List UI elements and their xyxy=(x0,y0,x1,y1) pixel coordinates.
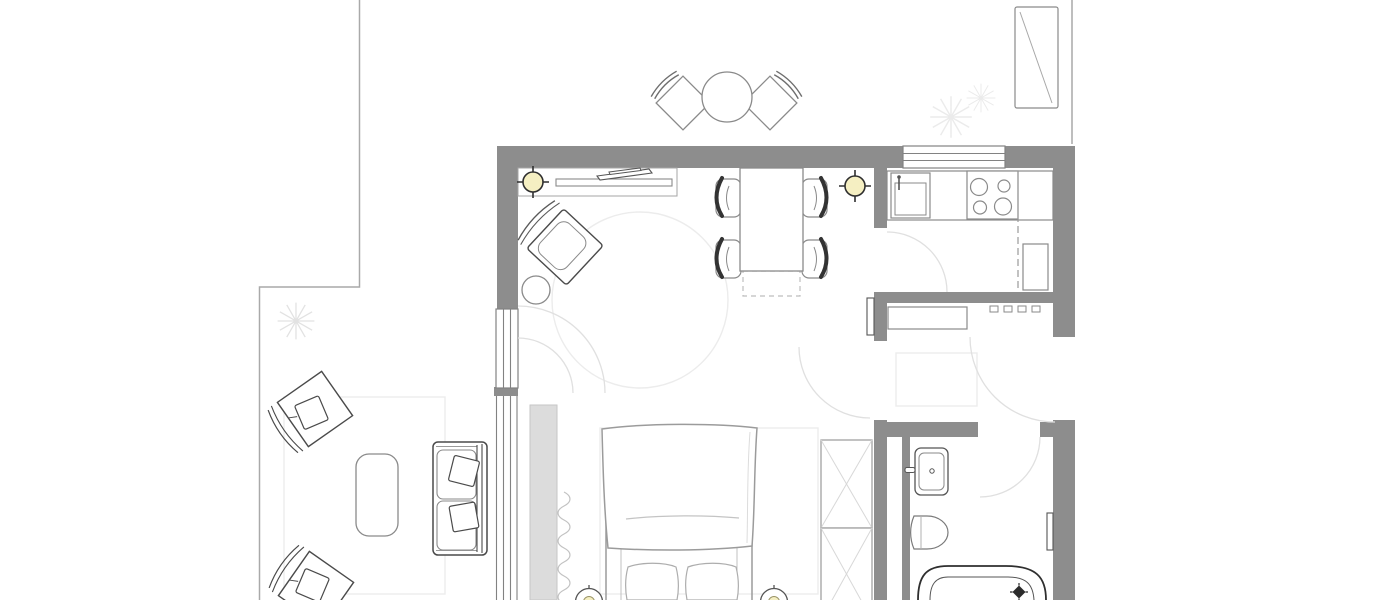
plant-icon xyxy=(930,96,972,138)
wall-bathroom-inner xyxy=(902,437,910,600)
hall-rug xyxy=(896,353,977,406)
double-bed xyxy=(602,424,757,600)
duvet xyxy=(602,424,757,550)
kitchen-door-swing-arc xyxy=(887,232,947,292)
hook-icon xyxy=(1032,306,1040,312)
pillow xyxy=(626,563,679,600)
wall-mid-lower xyxy=(874,420,887,600)
bedside-lamp-left xyxy=(576,585,603,600)
wall-top-right xyxy=(1005,146,1075,168)
hallway-door-leaf xyxy=(867,298,874,335)
kitchen-sink xyxy=(891,173,930,218)
outdoor-sofa xyxy=(433,442,487,555)
glass-door-swing-arc xyxy=(518,306,605,393)
wall-right-lower xyxy=(1053,420,1075,600)
washbasin xyxy=(905,448,948,495)
wall-niche xyxy=(1047,513,1053,550)
pouf xyxy=(522,276,550,304)
hook-icon xyxy=(1004,306,1012,312)
plant-icon xyxy=(967,84,996,113)
top-window xyxy=(903,146,1005,168)
hook-icon xyxy=(1018,306,1026,312)
base-cabinet xyxy=(1023,244,1048,290)
wall-mid-upper xyxy=(874,168,887,228)
wall-right-upper xyxy=(1053,168,1075,337)
faucet-icon xyxy=(905,468,915,473)
glass-sliding-door xyxy=(497,396,518,600)
toilet xyxy=(911,516,948,549)
plant-icon xyxy=(278,303,315,340)
floor-plan xyxy=(0,0,1400,600)
kitchen-furniture xyxy=(887,171,1053,291)
bistro-chair-left xyxy=(649,69,710,130)
terrace-furniture xyxy=(649,7,1058,130)
lounge-chair-2 xyxy=(265,542,353,600)
wall-kitchen-bottom xyxy=(874,292,1053,303)
bathroom-door-swing-arc xyxy=(980,437,1040,497)
shoe-bench xyxy=(888,307,967,329)
hallway-door-swing-arc xyxy=(799,347,870,418)
entry-door-swing-arc xyxy=(970,337,1055,422)
closet-with-x xyxy=(821,440,872,600)
bedside-lamp-right xyxy=(761,585,788,600)
sofa-pillow xyxy=(448,455,480,487)
hook-icon xyxy=(990,306,998,312)
pillow xyxy=(686,563,739,600)
curtain xyxy=(558,492,570,600)
wall-bathroom-top-left xyxy=(874,422,978,437)
dining-table-extension xyxy=(743,271,800,296)
hallway-furniture xyxy=(888,306,1040,329)
left-window xyxy=(496,309,518,388)
wall-hooks xyxy=(990,306,1040,312)
bathroom-furniture xyxy=(905,448,1053,600)
patio-furniture xyxy=(264,371,487,600)
bistro-table xyxy=(702,72,752,122)
patio-boundary-line xyxy=(260,0,360,600)
wall-left-upper xyxy=(497,146,518,309)
sun-lounger xyxy=(1015,7,1058,108)
bathtub xyxy=(918,566,1046,600)
built-in-wardrobe xyxy=(530,405,557,600)
lounge-chair-1 xyxy=(264,371,352,456)
armchair xyxy=(514,197,604,286)
coffee-table xyxy=(356,454,398,536)
living-dining-furniture xyxy=(514,166,874,335)
sofa-pillow xyxy=(449,502,479,532)
dining-table xyxy=(740,168,803,271)
cooktop xyxy=(967,171,1018,219)
sleeping-furniture xyxy=(530,405,872,600)
wall-bathroom-top-right xyxy=(1040,422,1054,437)
wall-top xyxy=(497,146,903,168)
ceiling-lamp-right xyxy=(839,170,871,202)
floor-plan-drawing xyxy=(0,0,1400,600)
